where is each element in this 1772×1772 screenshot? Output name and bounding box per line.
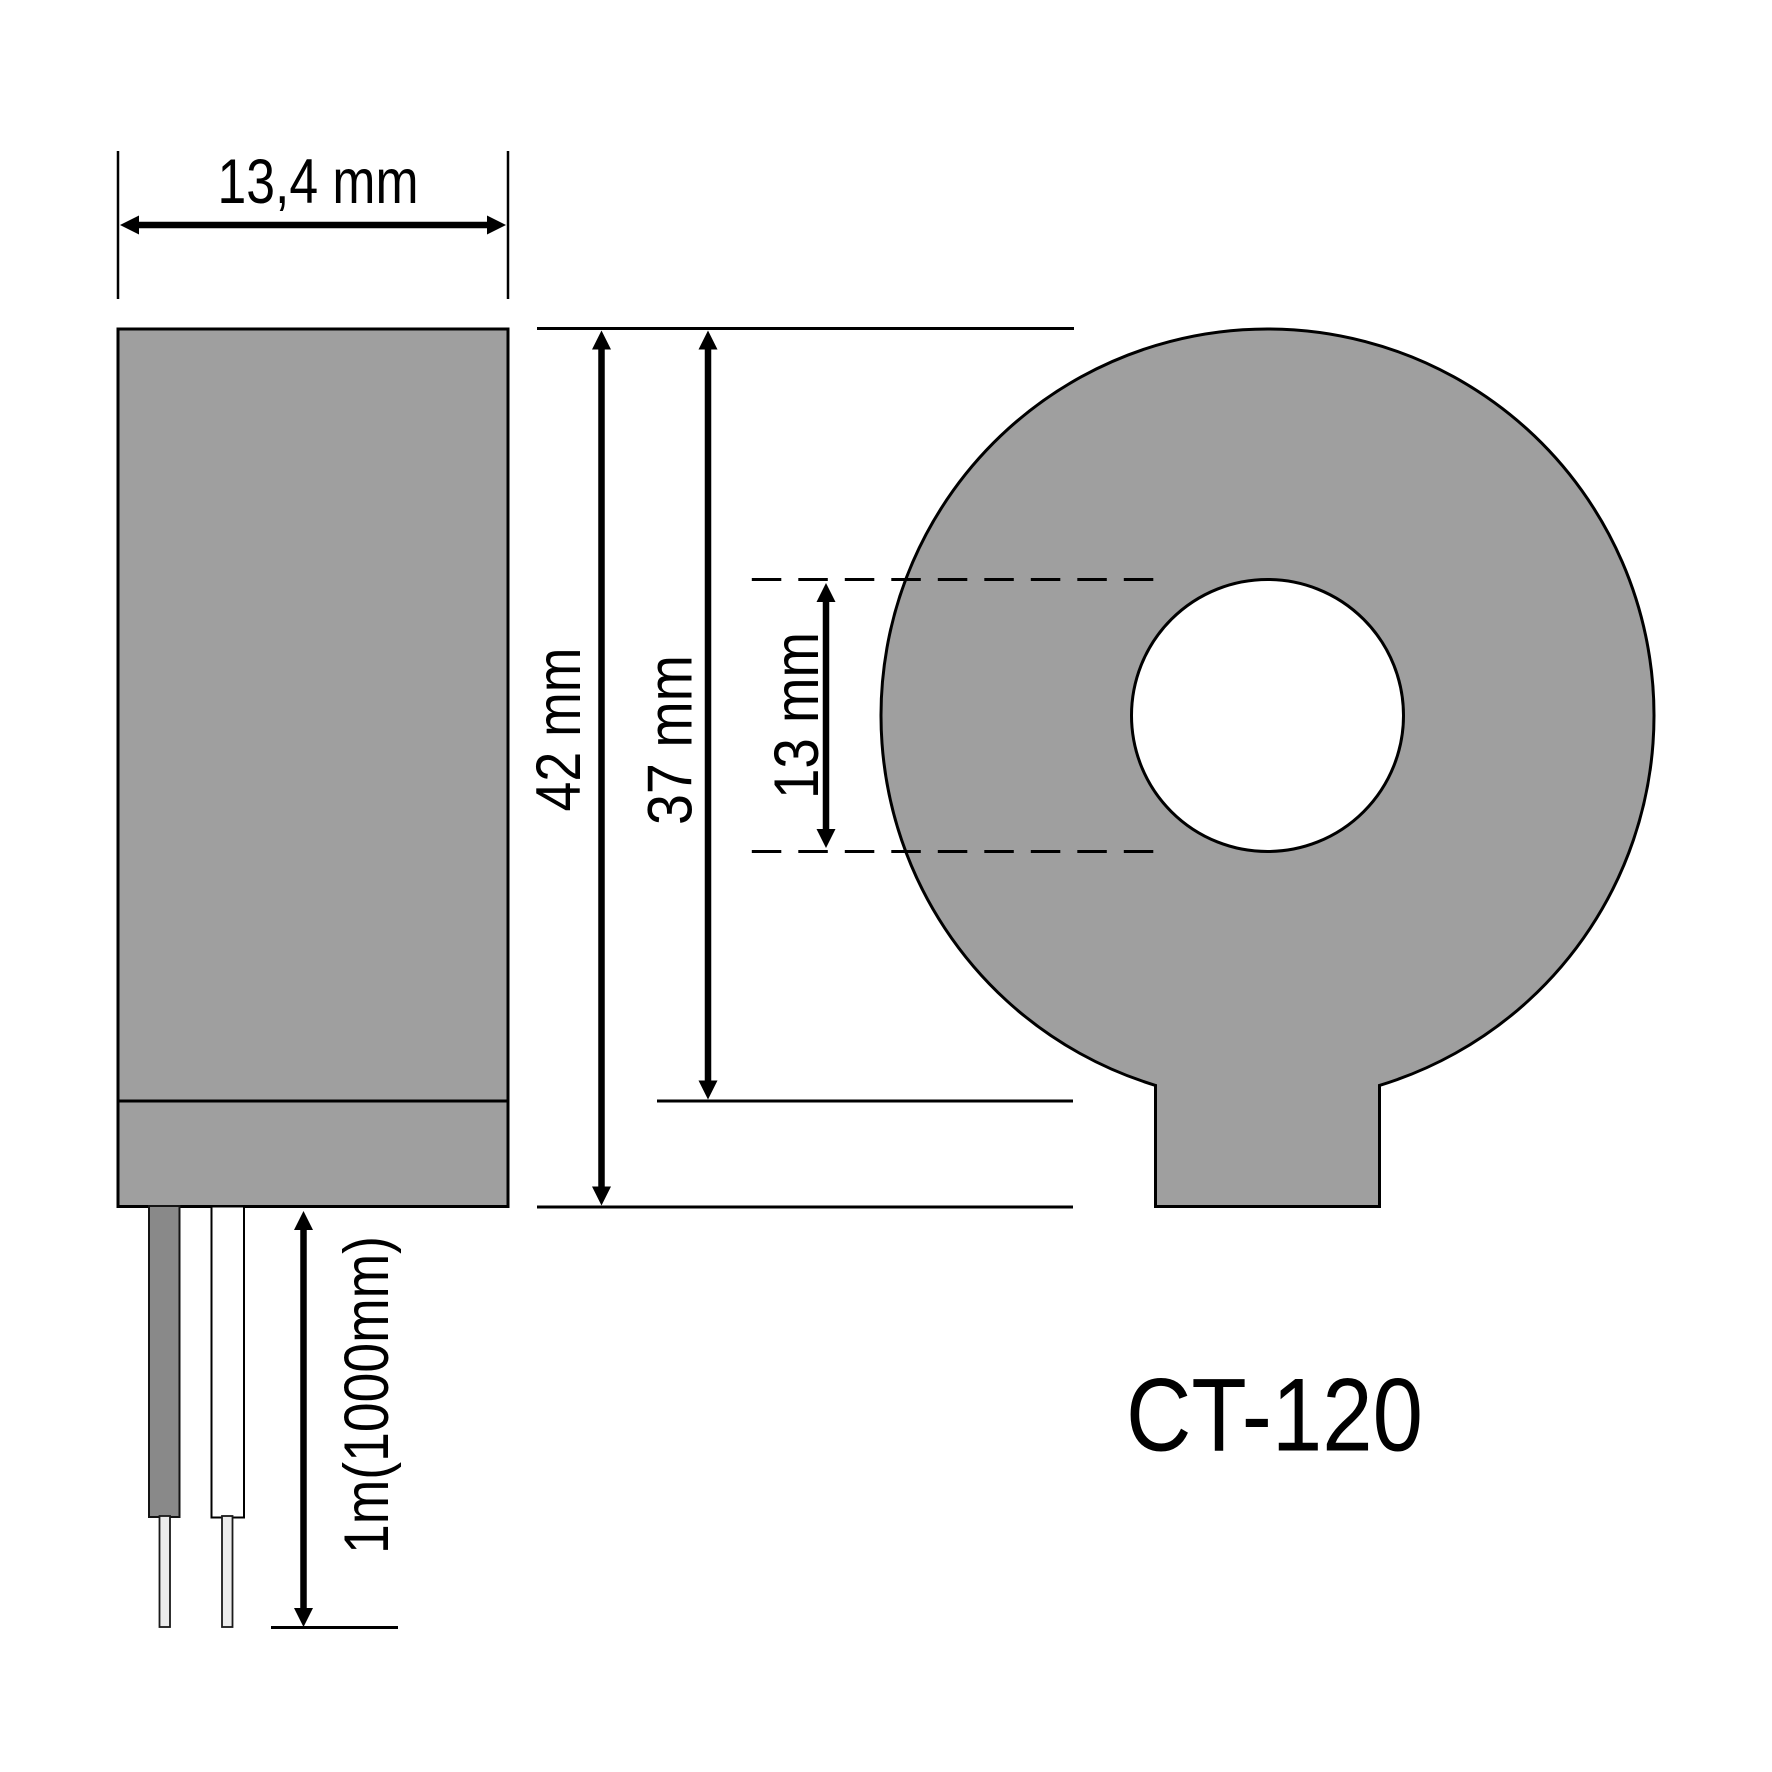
- svg-text:13,4 mm: 13,4 mm: [218, 147, 419, 217]
- svg-text:1m(1000mm): 1m(1000mm): [332, 1236, 402, 1554]
- svg-text:42 mm: 42 mm: [524, 648, 594, 812]
- svg-text:CT-120: CT-120: [1126, 1358, 1423, 1474]
- svg-text:13 mm: 13 mm: [762, 632, 832, 799]
- svg-text:37 mm: 37 mm: [636, 655, 706, 825]
